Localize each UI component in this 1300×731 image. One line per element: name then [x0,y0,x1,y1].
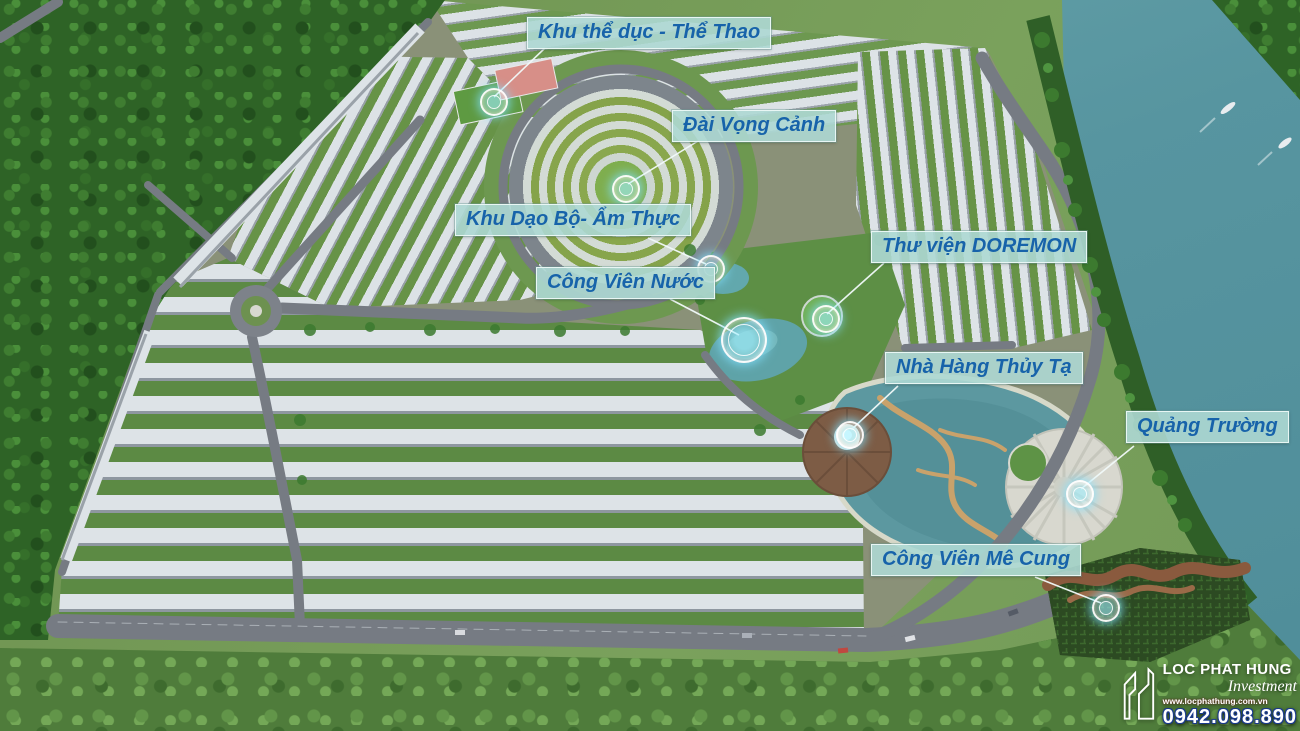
logo-division: Investment [1163,678,1297,695]
logo-company-name: LOC PHAT HUNG [1163,662,1297,678]
observation-tower-marker-icon [612,175,640,203]
logo-building-icon [1119,662,1157,724]
label-doremon-library: Thư viện DOREMON [871,231,1087,263]
label-water-park: Công Viên Nước [536,267,715,299]
plaza-marker-icon [1066,480,1094,508]
masterplan-render: Khu thể dục - Thể Thao Đài Vọng Cảnh Khu… [0,0,1300,731]
developer-watermark: LOC PHAT HUNG Investment www.locphathung… [1119,662,1297,729]
boats [1200,100,1293,165]
doremon-library-marker-icon [812,305,840,333]
edge-row-left [66,332,150,560]
label-maze-park: Công Viên Mê Cung [871,544,1081,576]
roundabout [230,285,282,337]
maze-park-marker-icon [1092,594,1120,622]
sports-area-marker-icon [480,88,508,116]
label-observation-tower: Đài Vọng Cảnh [672,110,836,142]
label-sports-area: Khu thể dục - Thể Thao [527,17,771,49]
water-park-marker-icon [721,317,767,363]
logo-phone: 0942.098.890 [1163,707,1297,729]
label-lake-restaurant: Nhà Hàng Thủy Tạ [885,352,1083,384]
lake-restaurant-marker-icon [836,421,864,449]
label-walking-food-area: Khu Dạo Bộ- Ẩm Thực [455,204,691,236]
logo-website: www.locphathung.com.vn [1163,697,1297,706]
label-plaza: Quảng Trường [1126,411,1289,443]
